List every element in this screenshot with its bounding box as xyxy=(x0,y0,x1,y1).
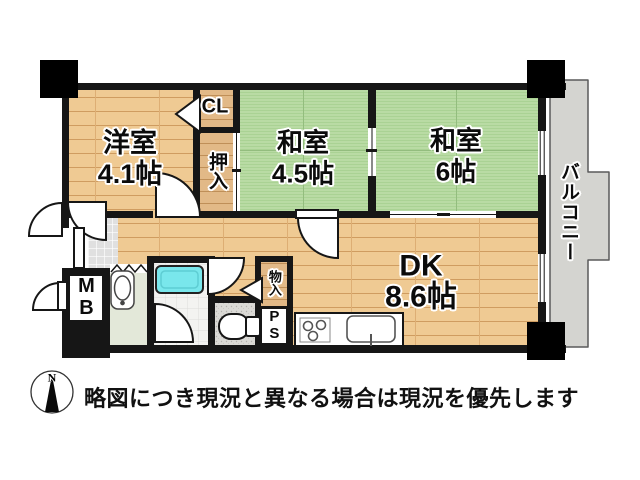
room-size-japanese-6: 6帖 xyxy=(436,158,476,185)
room-label-balcony: バルコニー xyxy=(558,162,578,262)
room-size-dk: 8.6帖 xyxy=(385,281,457,313)
pillar-top-left xyxy=(40,60,78,98)
room-size-western: 4.1帖 xyxy=(98,160,163,188)
kitchen-sink-icon xyxy=(347,316,395,346)
label-pipe-space: PS xyxy=(266,308,282,342)
compass-north-label: N xyxy=(48,371,57,386)
door-arc-meter-box xyxy=(33,283,60,310)
label-storage: 物入 xyxy=(267,270,281,296)
room-label-japanese-6: 和室 xyxy=(430,127,482,154)
bathtub xyxy=(156,266,203,293)
window-dk xyxy=(538,254,546,302)
stove-icon xyxy=(300,318,330,342)
meter-box-door-leaf xyxy=(58,282,67,310)
entrance-door-leaf xyxy=(74,228,84,268)
floor-plan-page: 洋室 4.1帖 和室 4.5帖 和室 6帖 DK 8.6帖 バルコニー CL 押… xyxy=(0,0,640,480)
toilet-icon xyxy=(219,314,260,339)
room-label-japanese-45: 和室 xyxy=(277,129,329,156)
sliding-door-tatami6 xyxy=(386,211,500,218)
door-arc-entrance xyxy=(29,203,62,236)
window-tatami6 xyxy=(538,131,546,175)
fusuma-oshiire xyxy=(232,133,241,211)
room-label-dk: DK xyxy=(399,250,442,282)
label-oshiire: 押入 xyxy=(206,152,226,190)
label-meter-box: MB xyxy=(76,275,97,319)
washbasin-icon xyxy=(111,271,134,309)
room-label-western: 洋室 xyxy=(103,129,157,157)
kitchen-counter xyxy=(295,313,403,346)
label-closet: CL xyxy=(202,97,229,118)
disclaimer-text: 略図につき現況と異なる場合は現況を優先します xyxy=(84,381,579,413)
room-size-japanese-45: 4.5帖 xyxy=(272,160,334,187)
pillar-bottom-right xyxy=(527,322,565,360)
pillar-top-right xyxy=(527,60,565,98)
dk-door-leaf xyxy=(296,210,338,218)
